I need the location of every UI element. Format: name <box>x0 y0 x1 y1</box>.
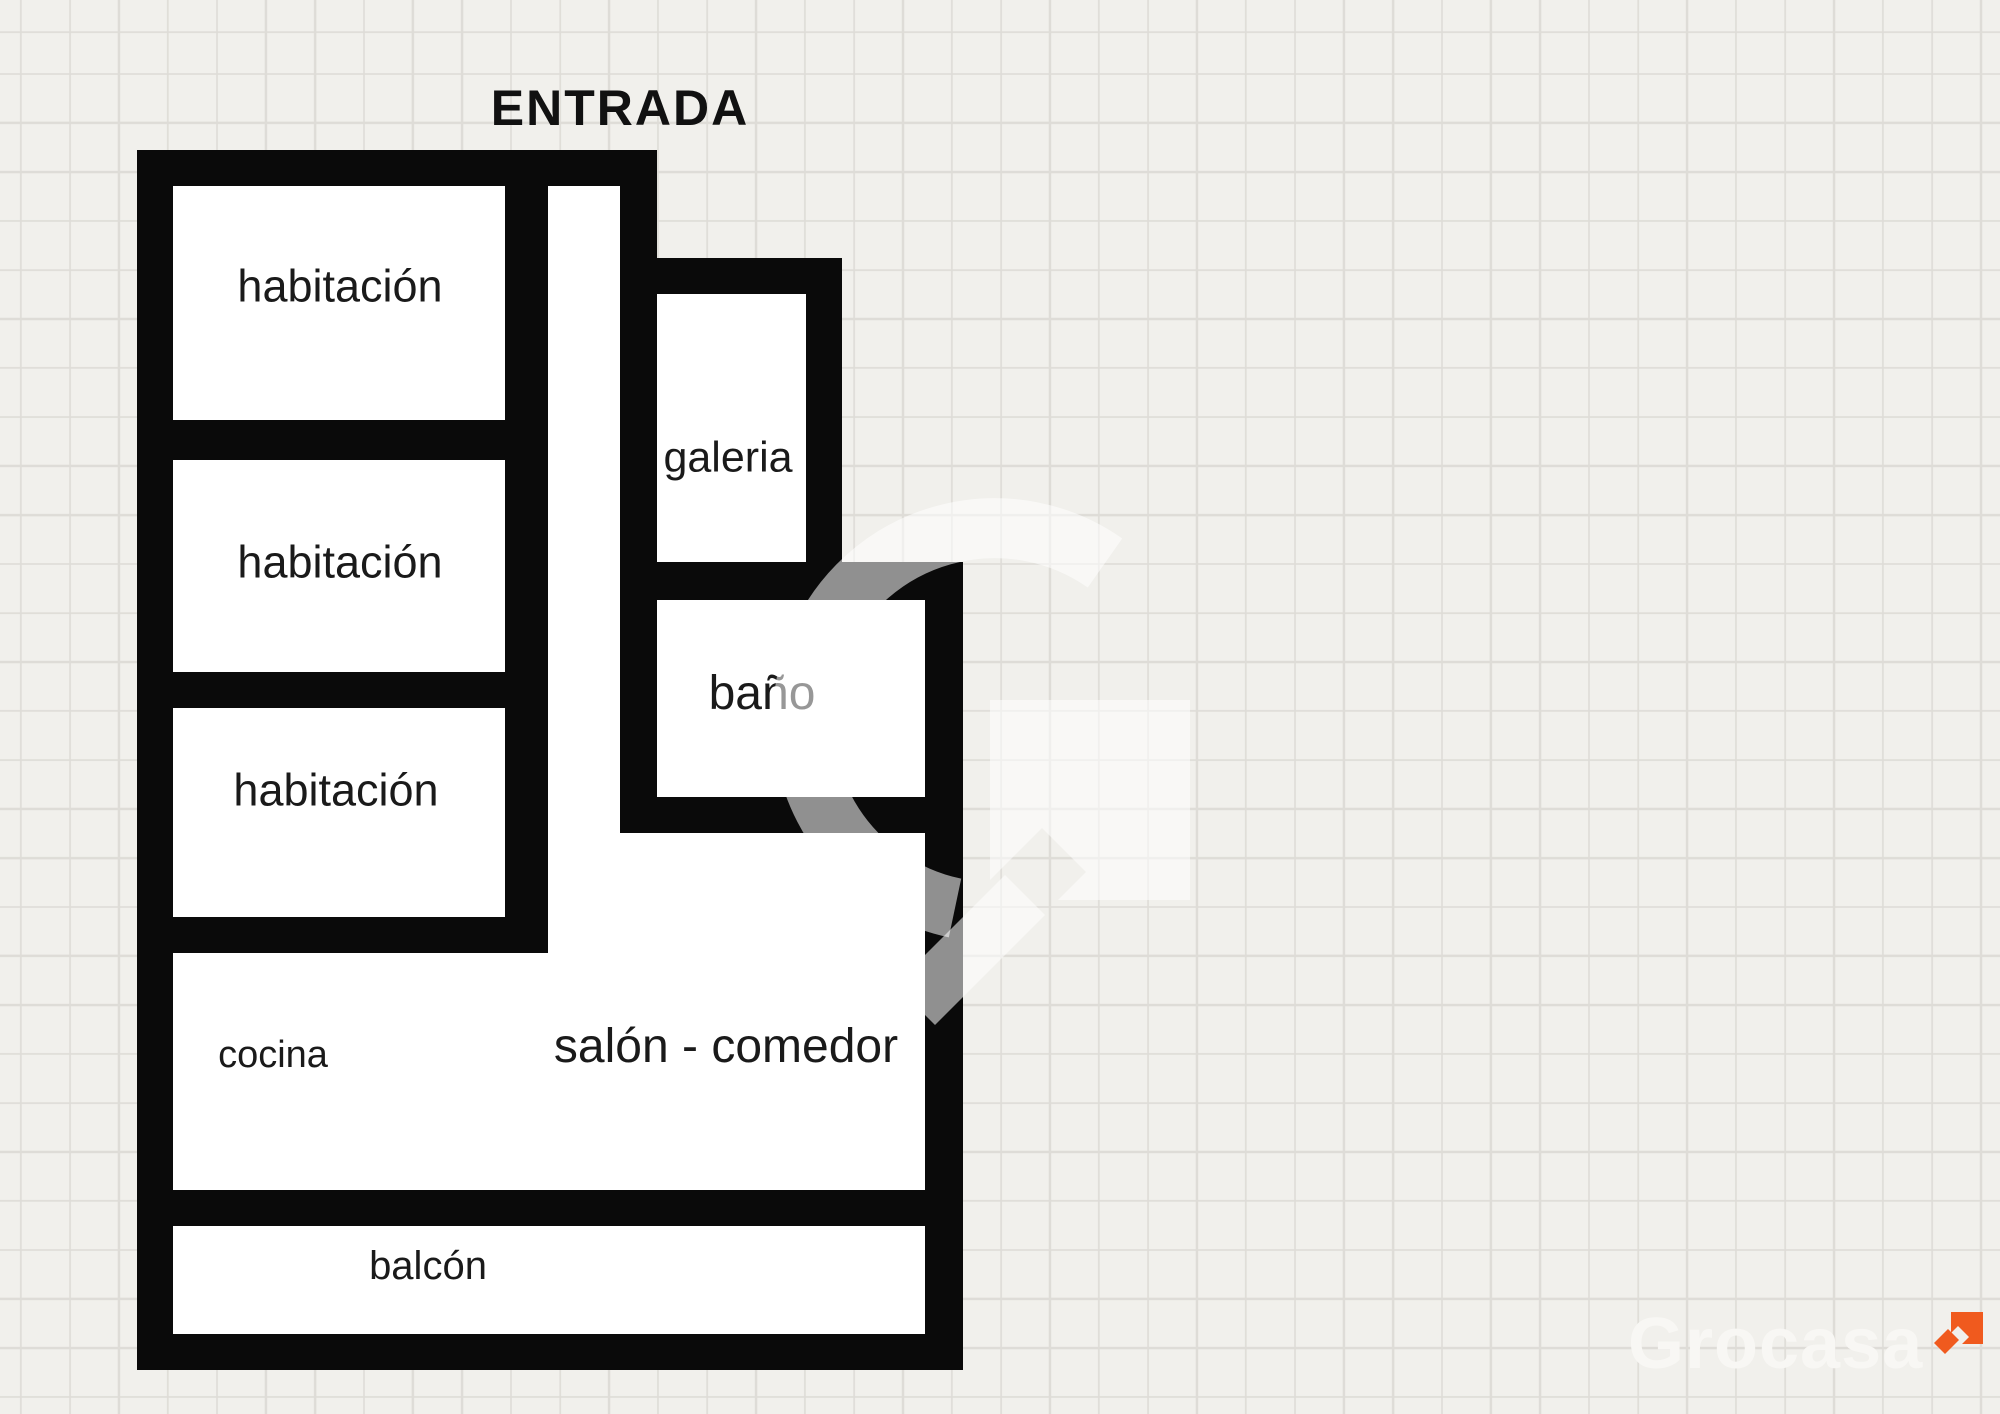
wall-habitacion3-bottom <box>137 917 548 953</box>
wall-balcon-top <box>137 1190 963 1226</box>
room-salon-upper <box>548 833 925 953</box>
wall-top <box>137 150 657 186</box>
grocasa-logo: Grocasa <box>1628 1308 1985 1380</box>
room-balcon <box>173 1226 925 1334</box>
entrance-label: ENTRADA <box>491 83 749 133</box>
room-label-galeria: galeria <box>663 437 792 480</box>
wall-corridor-left <box>505 150 548 953</box>
grocasa-arrow-icon <box>1931 1312 1985 1362</box>
wall-partition-2 <box>173 672 505 708</box>
room-label-salon-comedor: salón - comedor <box>554 1023 898 1071</box>
wall-galeria-right <box>806 258 842 600</box>
floor-plan: ENTRADA habitación habitación habitación… <box>0 0 2000 1414</box>
room-label-habitacion-1: habitación <box>237 264 442 309</box>
wall-right <box>925 562 963 1370</box>
wall-bottom <box>137 1334 963 1370</box>
wall-partition-1 <box>173 420 505 460</box>
wall-bano-top <box>620 562 963 600</box>
room-label-balcon: balcón <box>369 1246 487 1286</box>
grocasa-logo-text: Grocasa <box>1628 1308 1923 1380</box>
room-galeria <box>657 294 806 562</box>
wall-corridor-right <box>620 150 657 833</box>
room-label-bano: baño <box>709 670 816 718</box>
room-label-cocina: cocina <box>218 1036 328 1074</box>
wall-left <box>137 150 173 1370</box>
wall-bano-bottom <box>620 797 963 833</box>
room-label-habitacion-2: habitación <box>237 540 442 585</box>
room-label-habitacion-3: habitación <box>233 768 438 813</box>
